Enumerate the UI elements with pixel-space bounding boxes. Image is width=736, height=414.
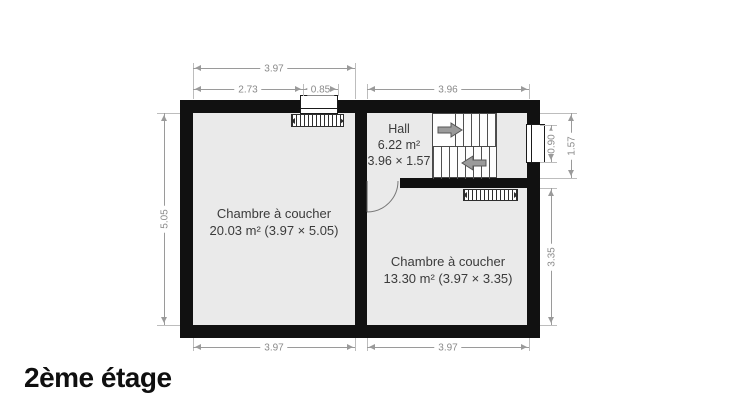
room-name: Chambre à coucher — [193, 205, 355, 222]
dimension-bottom-left: 3.97 — [193, 347, 355, 348]
radiator-icon — [291, 114, 344, 127]
dimension-label: 0.90 — [546, 130, 557, 157]
dimension-label: 3.96 — [434, 84, 461, 95]
window-icon — [526, 124, 545, 163]
window-glazing-line — [301, 108, 337, 109]
wall-bottom — [180, 325, 540, 338]
dimension-bottom-right: 3.97 — [367, 347, 529, 348]
dimension-top-hall: 3.96 — [367, 89, 529, 90]
dimension-right-room-height: 3.35 — [551, 188, 552, 325]
room-name: Hall — [360, 121, 438, 137]
room-area: 6.22 m² — [360, 137, 438, 153]
radiator-icon — [463, 189, 518, 201]
dimension-label: 3.97 — [260, 63, 287, 74]
floor-plan: Chambre à coucher 20.03 m² (3.97 × 5.05)… — [0, 0, 736, 414]
dimension-hall-window: 0.90 — [551, 125, 552, 162]
wall-top — [180, 100, 540, 113]
room-size: 3.96 × 1.57 — [360, 153, 438, 169]
room-details: 13.30 m² (3.97 × 3.35) — [367, 270, 529, 287]
dimension-label: 3.97 — [434, 342, 461, 353]
room-label-bedroom-right: Chambre à coucher 13.30 m² (3.97 × 3.35) — [367, 253, 529, 287]
dimension-label: 0.85 — [307, 84, 334, 95]
room-label-hall: Hall 6.22 m² 3.96 × 1.57 — [360, 121, 438, 169]
dimension-left-height: 5.05 — [164, 113, 165, 325]
page-title: 2ème étage — [24, 362, 172, 394]
dimension-label: 1.57 — [566, 132, 577, 159]
dimension-top-window: 0.85 — [303, 89, 338, 90]
door-arc-icon — [360, 176, 406, 222]
wall-left — [180, 100, 193, 338]
window-icon — [300, 95, 338, 114]
dimension-top-total: 3.97 — [193, 68, 355, 69]
dimension-label: 2.73 — [234, 84, 261, 95]
dimension-hall-height: 1.57 — [571, 113, 572, 178]
staircase — [432, 113, 497, 178]
stairs-up-arrow-icon — [437, 122, 463, 138]
window-glazing-line — [531, 125, 532, 162]
stairs-down-arrow-icon — [461, 155, 487, 171]
room-label-bedroom-left: Chambre à coucher 20.03 m² (3.97 × 5.05) — [193, 205, 355, 239]
room-details: 20.03 m² (3.97 × 5.05) — [193, 222, 355, 239]
wall-hall-divider — [400, 178, 527, 188]
dimension-label: 3.97 — [260, 342, 287, 353]
dimension-label: 3.35 — [546, 243, 557, 270]
dimension-label: 5.05 — [159, 205, 170, 232]
dimension-top-left-segment: 2.73 — [193, 89, 303, 90]
room-name: Chambre à coucher — [367, 253, 529, 270]
